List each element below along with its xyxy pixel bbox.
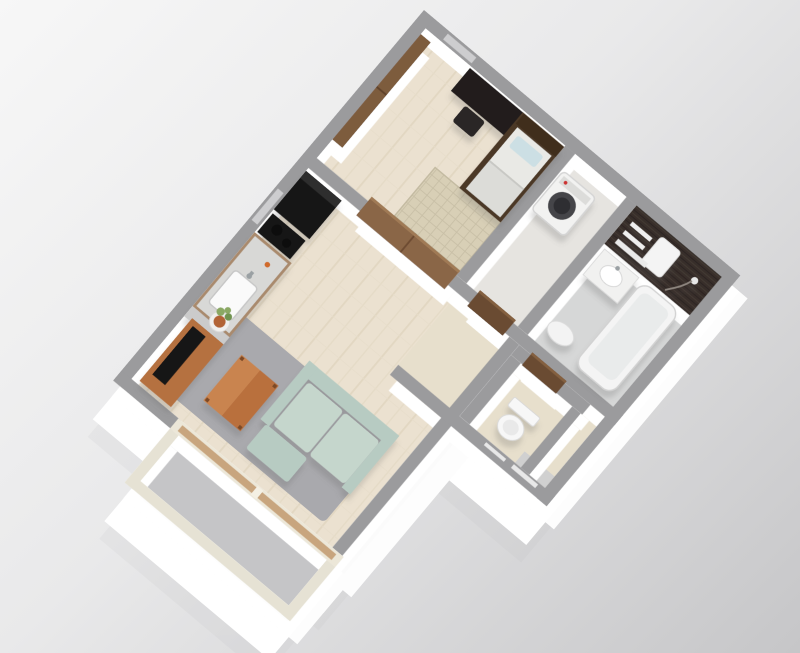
stage: [0, 0, 800, 653]
floor-plan-scene: [0, 0, 800, 653]
apartment: [29, 10, 756, 653]
